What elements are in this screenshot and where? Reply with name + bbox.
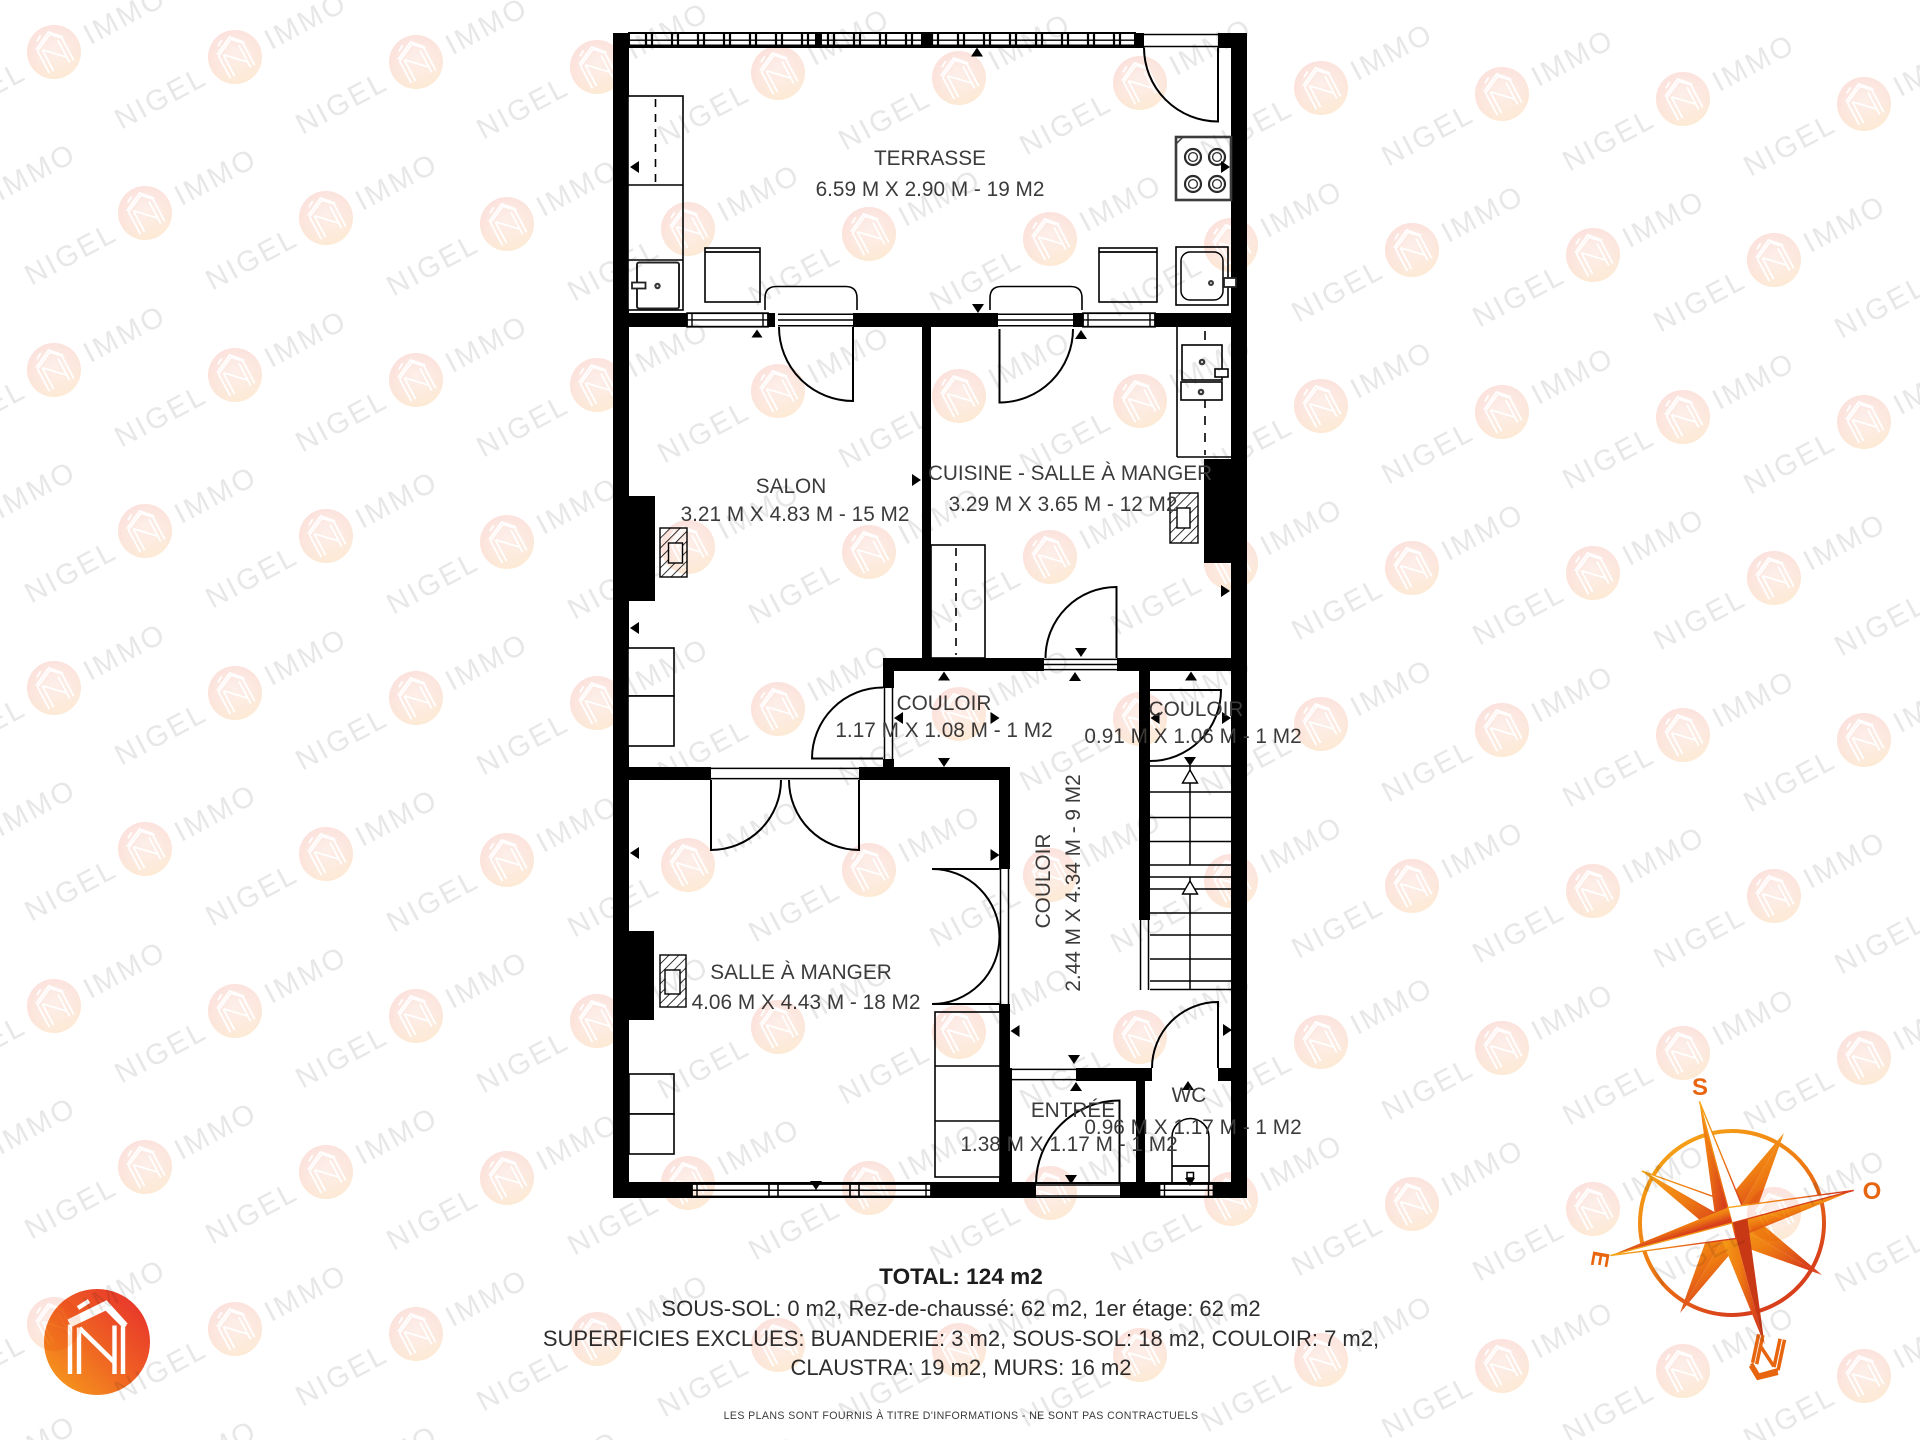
svg-text:TOTAL: 124 m2: TOTAL: 124 m2 <box>879 1264 1043 1289</box>
svg-text:LES PLANS SONT FOURNIS À TITRE: LES PLANS SONT FOURNIS À TITRE D'INFORMA… <box>724 1409 1199 1422</box>
svg-text:0.96 M X 1.17 M - 1 M2: 0.96 M X 1.17 M - 1 M2 <box>1084 1116 1301 1139</box>
svg-text:SOUS-SOL: 0 m2, Rez-de-chaussé: SOUS-SOL: 0 m2, Rez-de-chaussé: 62 m2, 1… <box>661 1296 1260 1321</box>
svg-text:S: S <box>1692 1074 1708 1101</box>
